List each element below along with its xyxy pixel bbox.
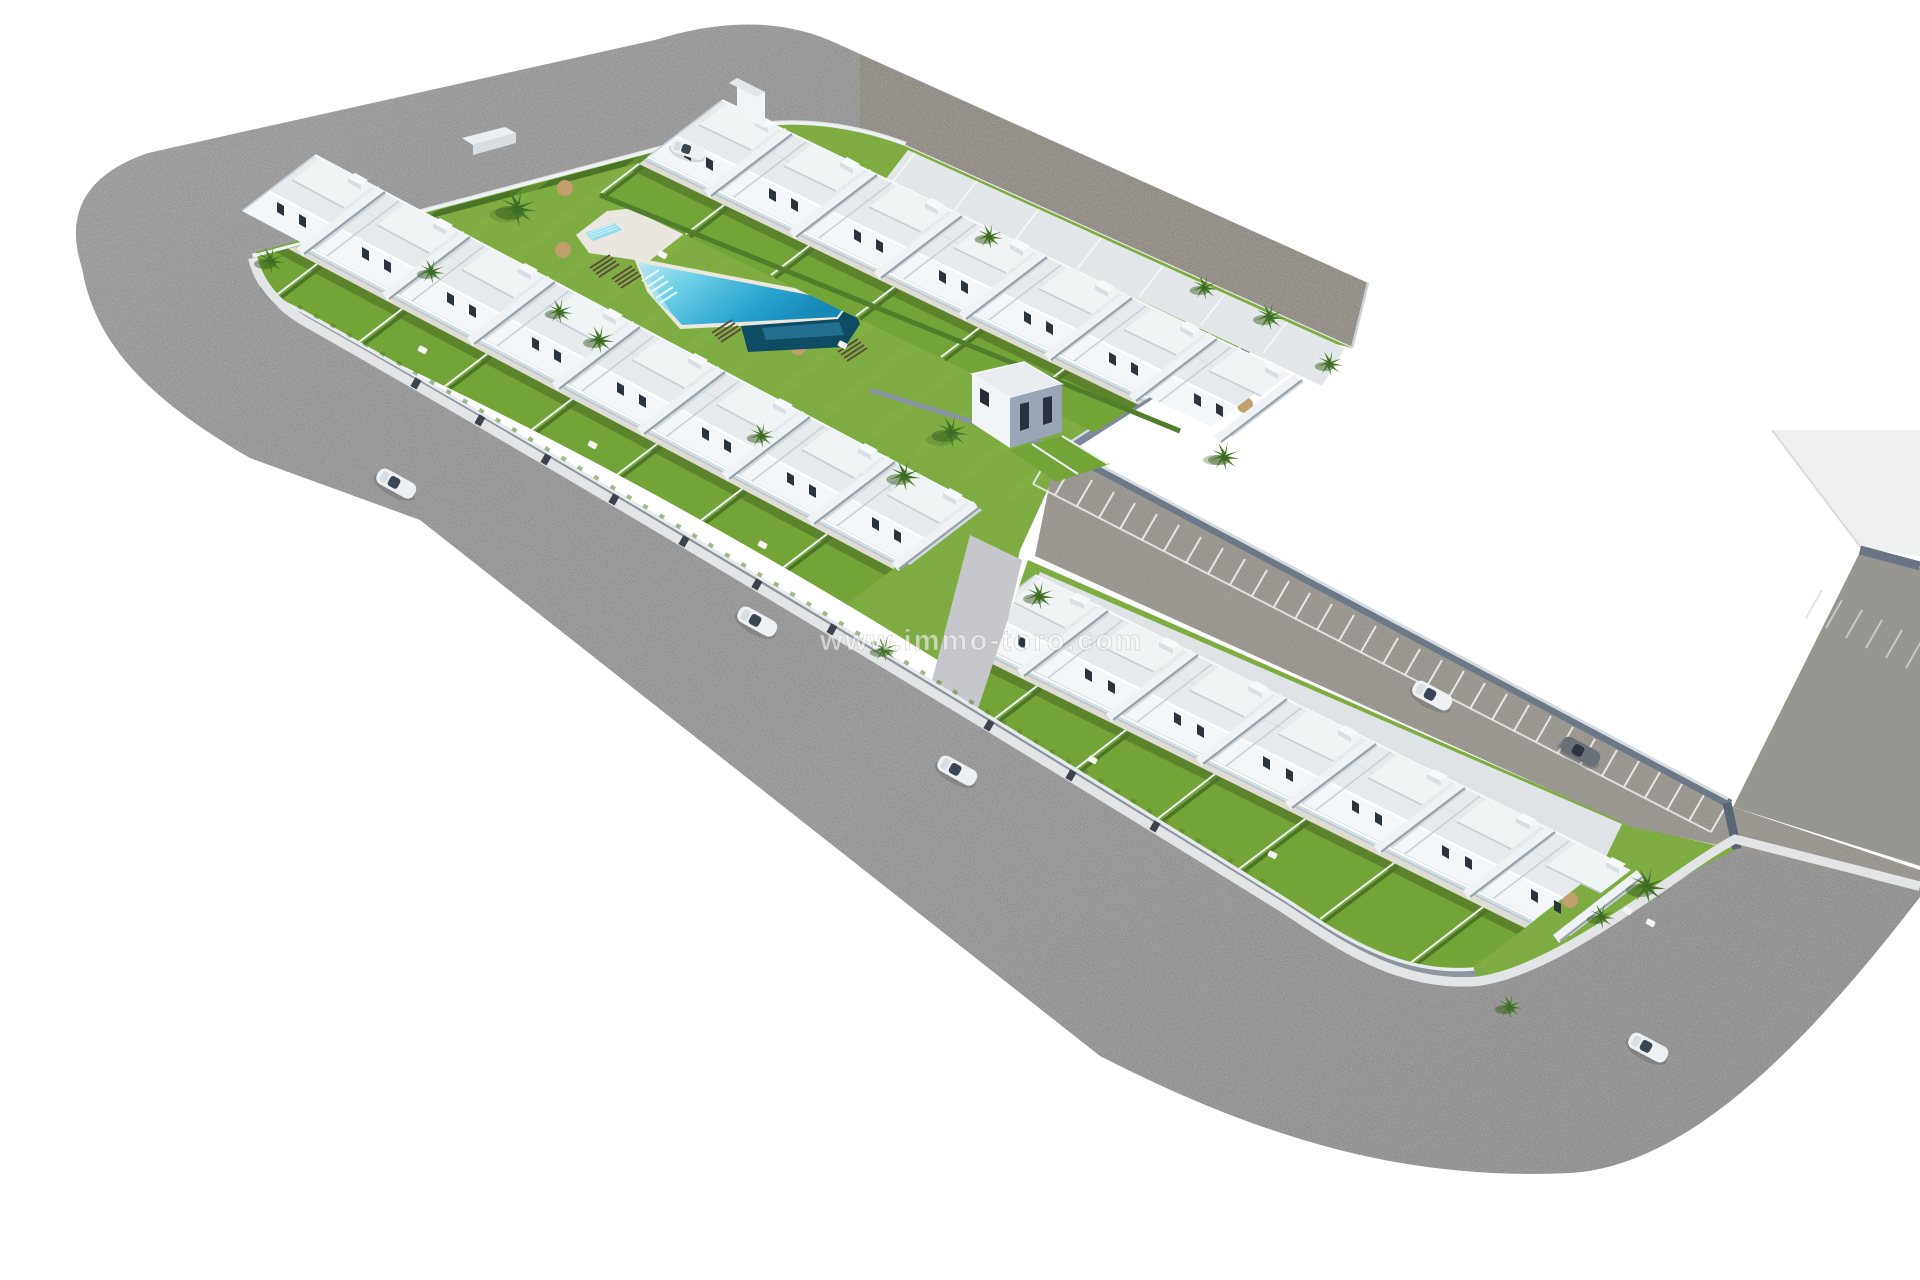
- svg-text:www.immo-toro.com: www.immo-toro.com: [819, 625, 1143, 657]
